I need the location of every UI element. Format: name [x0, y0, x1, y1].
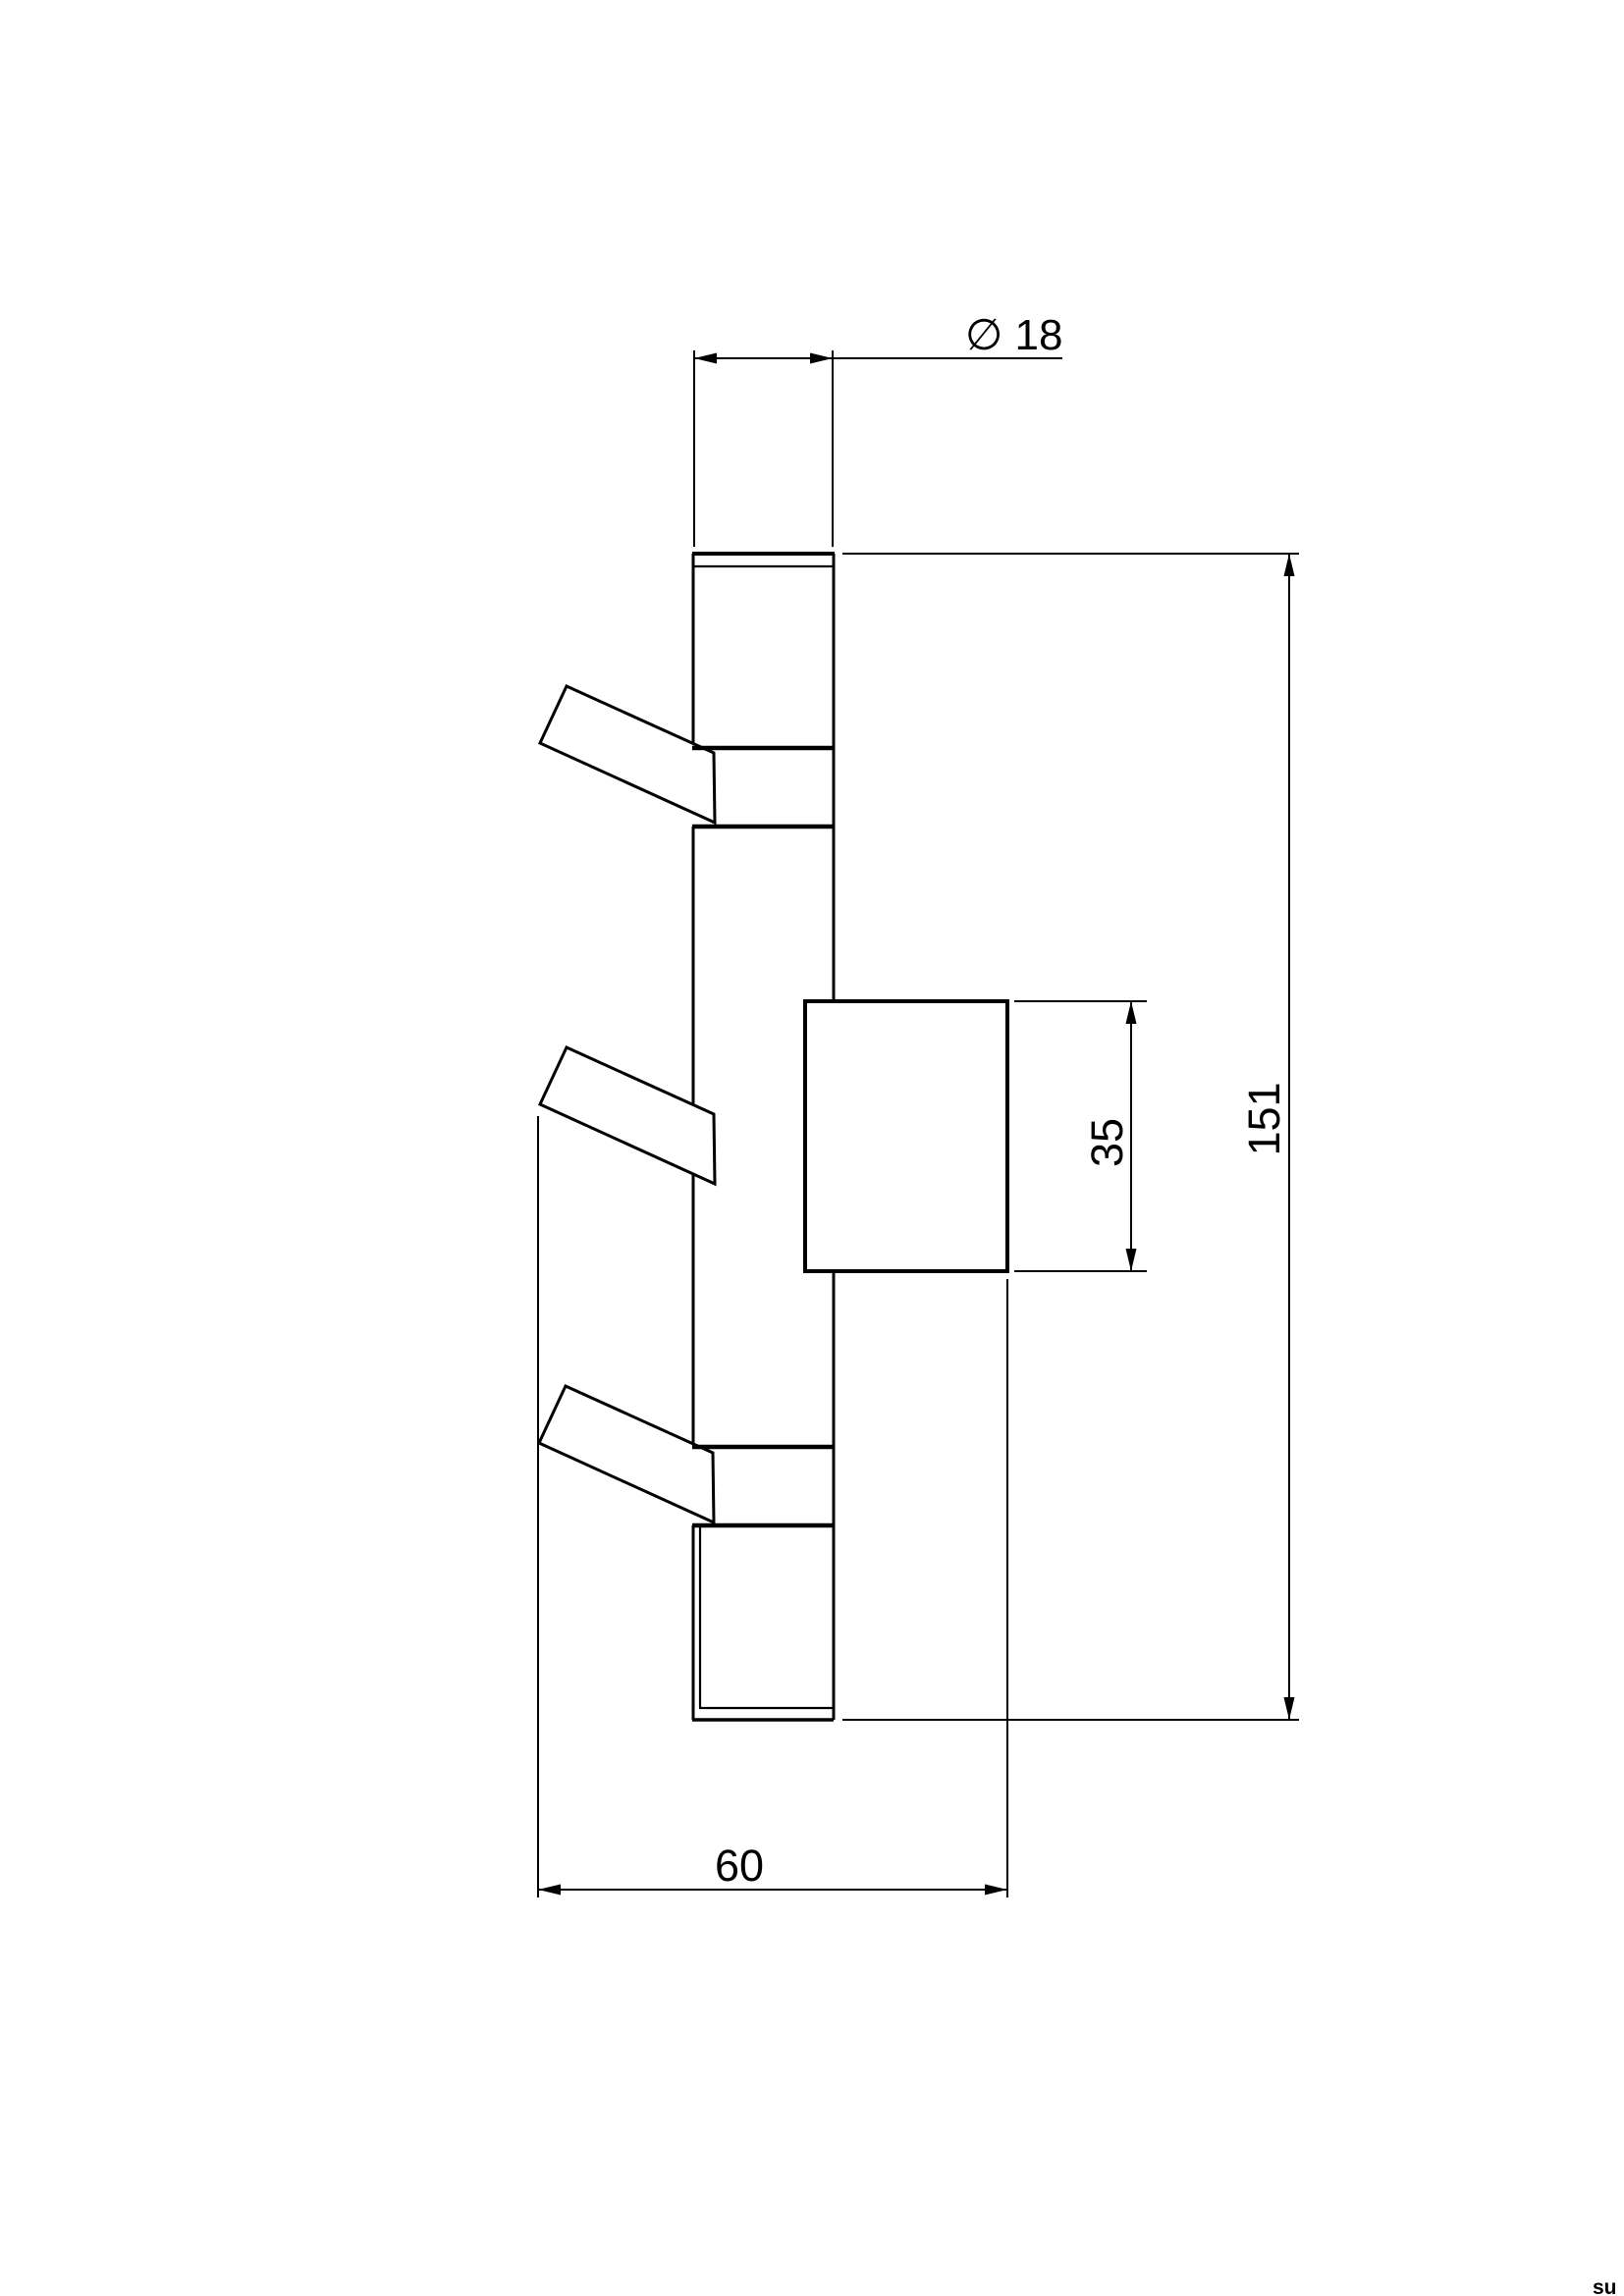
arrowhead-right — [810, 353, 833, 364]
arrowhead-top — [1126, 1001, 1137, 1024]
dimension-text: 151 — [1239, 1082, 1289, 1155]
hooks — [539, 686, 715, 1522]
dim-diameter: ∅ 18 — [694, 311, 1063, 547]
wall-mount-plate — [805, 1001, 1007, 1271]
dimension-text: 35 — [1082, 1118, 1132, 1167]
arrowhead-left — [538, 1885, 561, 1896]
arrowhead-right — [985, 1885, 1007, 1896]
hook-middle — [540, 1047, 715, 1184]
arrowhead-bottom — [1126, 1249, 1137, 1271]
bottom-end-detail — [692, 1526, 834, 1720]
watermark-text: su — [1593, 2276, 1617, 2296]
arrowhead-top — [1284, 554, 1295, 576]
dimension-text: ∅ 18 — [965, 311, 1063, 359]
hook-top — [540, 686, 715, 823]
hook-bottom — [539, 1386, 714, 1522]
dimension-text: 60 — [715, 1841, 764, 1891]
dim-plate-height: 35 — [1014, 1001, 1147, 1271]
arrowhead-left — [694, 353, 717, 364]
technical-drawing-canvas: ∅ 18 151 35 60 su — [0, 0, 1624, 2296]
arrowhead-bottom — [1284, 1697, 1295, 1720]
